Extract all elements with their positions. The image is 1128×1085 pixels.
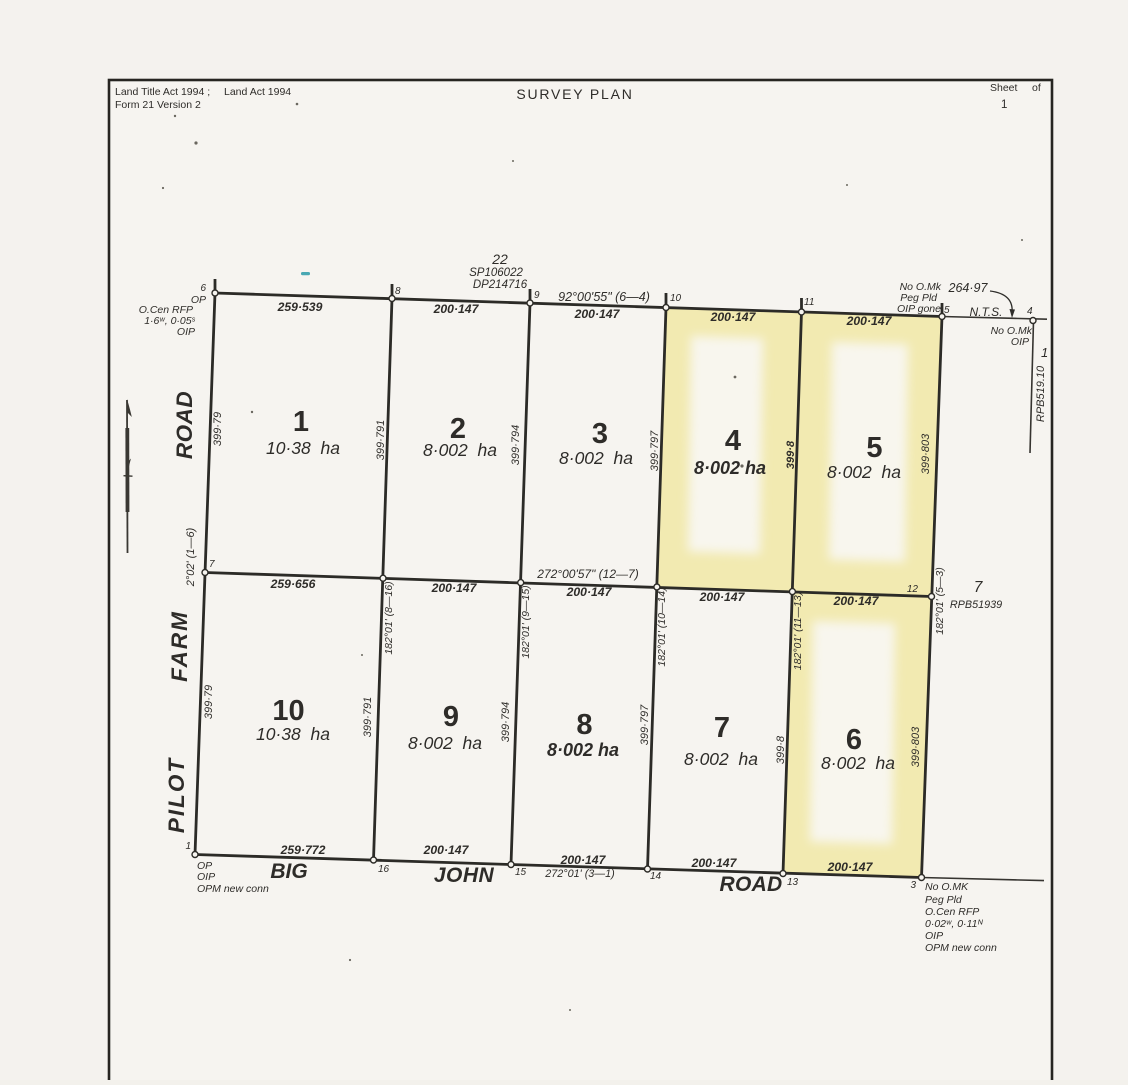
svg-text:264·97: 264·97 [948,281,989,295]
svg-text:Form 21 Version 2: Form 21 Version 2 [115,99,201,111]
svg-text:200·147: 200·147 [827,860,874,874]
svg-text:200·147: 200·147 [846,314,893,328]
svg-text:OIP gone: OIP gone [897,303,941,315]
svg-text:8·002 ha: 8·002 ha [547,740,619,760]
svg-text:8·002 ha: 8·002 ha [423,440,497,460]
svg-text:399·791: 399·791 [362,697,374,737]
svg-text:0·02ʷ, 0·11ᴺ: 0·02ʷ, 0·11ᴺ [925,918,983,930]
svg-text:N.T.S.: N.T.S. [970,305,1003,319]
svg-text:22: 22 [491,251,508,267]
svg-text:8: 8 [576,709,592,741]
svg-text:OP: OP [191,294,206,306]
svg-text:399·803: 399·803 [920,433,932,474]
svg-text:DP214716: DP214716 [473,279,528,291]
svg-text:16: 16 [378,864,390,875]
svg-text:92°00'55" (6—4): 92°00'55" (6—4) [558,290,650,304]
svg-text:15: 15 [515,867,527,878]
svg-text:272°00'57" (12—7): 272°00'57" (12—7) [536,567,638,581]
svg-text:Sheet: Sheet [990,82,1018,94]
svg-text:200·147: 200·147 [433,302,480,316]
svg-text:2°02' (1—6): 2°02' (1—6) [185,527,197,587]
svg-text:8·002 ha: 8·002 ha [821,753,895,773]
svg-text:9: 9 [534,290,540,301]
svg-text:200·147: 200·147 [574,307,621,321]
svg-text:399·8: 399·8 [785,440,797,469]
svg-text:259·772: 259·772 [280,843,326,857]
svg-text:of: of [1032,82,1041,94]
svg-text:259·539: 259·539 [277,300,323,314]
svg-text:182°01' (8—16): 182°01' (8—16) [383,581,395,654]
svg-text:O.Cen RFP: O.Cen RFP [925,906,979,918]
svg-text:8·002 ha: 8·002 ha [827,462,901,482]
svg-text:200·147: 200·147 [566,585,613,599]
svg-text:Land Act 1994: Land Act 1994 [224,86,291,98]
svg-text:399·794: 399·794 [510,425,522,465]
svg-text:399·794: 399·794 [500,702,512,742]
svg-text:8: 8 [395,286,401,297]
svg-text:11: 11 [804,297,814,308]
svg-text:OIP: OIP [1011,336,1029,348]
svg-text:JOHN: JOHN [434,864,495,887]
svg-text:4: 4 [1027,306,1033,317]
svg-text:10: 10 [670,293,682,304]
svg-text:399·797: 399·797 [649,430,661,471]
svg-text:399·8: 399·8 [775,735,787,764]
svg-text:200·147: 200·147 [710,310,757,324]
svg-text:7: 7 [974,579,984,596]
svg-text:182°01' (9—15): 182°01' (9—15) [520,585,532,658]
svg-text:399·803: 399·803 [910,726,922,767]
svg-text:8·002 ha: 8·002 ha [694,458,766,478]
svg-text:1: 1 [293,406,309,438]
svg-text:OPM new conn: OPM new conn [925,942,997,954]
svg-text:5: 5 [944,305,950,316]
svg-text:BIG: BIG [270,860,307,883]
svg-text:7: 7 [714,712,730,744]
svg-text:OIP: OIP [925,930,943,942]
svg-text:8·002 ha: 8·002 ha [408,733,482,753]
svg-text:182°01' (10—14): 182°01' (10—14) [656,587,668,666]
svg-text:5: 5 [866,432,882,464]
svg-text:10: 10 [272,695,304,727]
svg-text:1: 1 [185,841,191,852]
svg-text:200·147: 200·147 [699,590,746,604]
svg-text:8·002 ha: 8·002 ha [559,448,633,468]
svg-text:200·147: 200·147 [431,581,478,595]
svg-text:3: 3 [592,418,608,450]
svg-text:OPM new conn: OPM new conn [197,883,269,895]
svg-text:ROAD: ROAD [172,391,197,459]
svg-text:6: 6 [846,724,862,756]
svg-text:399·791: 399·791 [375,420,387,460]
svg-text:399·79: 399·79 [203,685,215,719]
svg-text:9: 9 [443,701,459,733]
svg-text:Peg Pld: Peg Pld [925,894,963,906]
svg-text:200·147: 200·147 [833,594,880,608]
svg-text:FARM: FARM [167,610,192,682]
svg-text:14: 14 [650,871,662,882]
svg-text:10·38 ha: 10·38 ha [256,724,330,744]
svg-text:1: 1 [1041,345,1048,360]
svg-text:6: 6 [200,283,206,294]
svg-text:8·002 ha: 8·002 ha [684,749,758,769]
svg-text:4: 4 [725,425,741,457]
svg-text:RPB519.10: RPB519.10 [1035,365,1047,422]
svg-text:272°01' (3—1): 272°01' (3—1) [544,868,614,880]
svg-text:1: 1 [1001,99,1007,111]
svg-text:SP106022: SP106022 [469,267,523,279]
svg-text:10·38 ha: 10·38 ha [266,438,340,458]
svg-text:ROAD: ROAD [719,873,782,896]
svg-text:OIP: OIP [177,326,195,338]
svg-text:259·656: 259·656 [270,577,316,591]
svg-text:182°01' (11—13): 182°01' (11—13) [792,592,804,670]
svg-text:12: 12 [907,584,919,595]
svg-text:Land Title Act 1994 ;: Land Title Act 1994 ; [115,86,210,98]
svg-text:No O.MK: No O.MK [925,881,969,893]
svg-text:200·147: 200·147 [691,856,738,870]
svg-text:RPB51939: RPB51939 [950,599,1002,611]
svg-text:OIP: OIP [197,871,215,883]
svg-text:200·147: 200·147 [560,853,607,867]
svg-text:399·79: 399·79 [212,412,224,446]
svg-text:182°01' (5—3): 182°01' (5—3) [934,567,946,635]
svg-text:7: 7 [209,559,215,570]
svg-text:3: 3 [910,880,916,891]
svg-text:PILOT: PILOT [164,757,189,834]
svg-text:SURVEY PLAN: SURVEY PLAN [516,86,633,102]
svg-text:399·797: 399·797 [639,704,651,745]
svg-text:200·147: 200·147 [423,843,470,857]
svg-text:13: 13 [787,877,799,888]
